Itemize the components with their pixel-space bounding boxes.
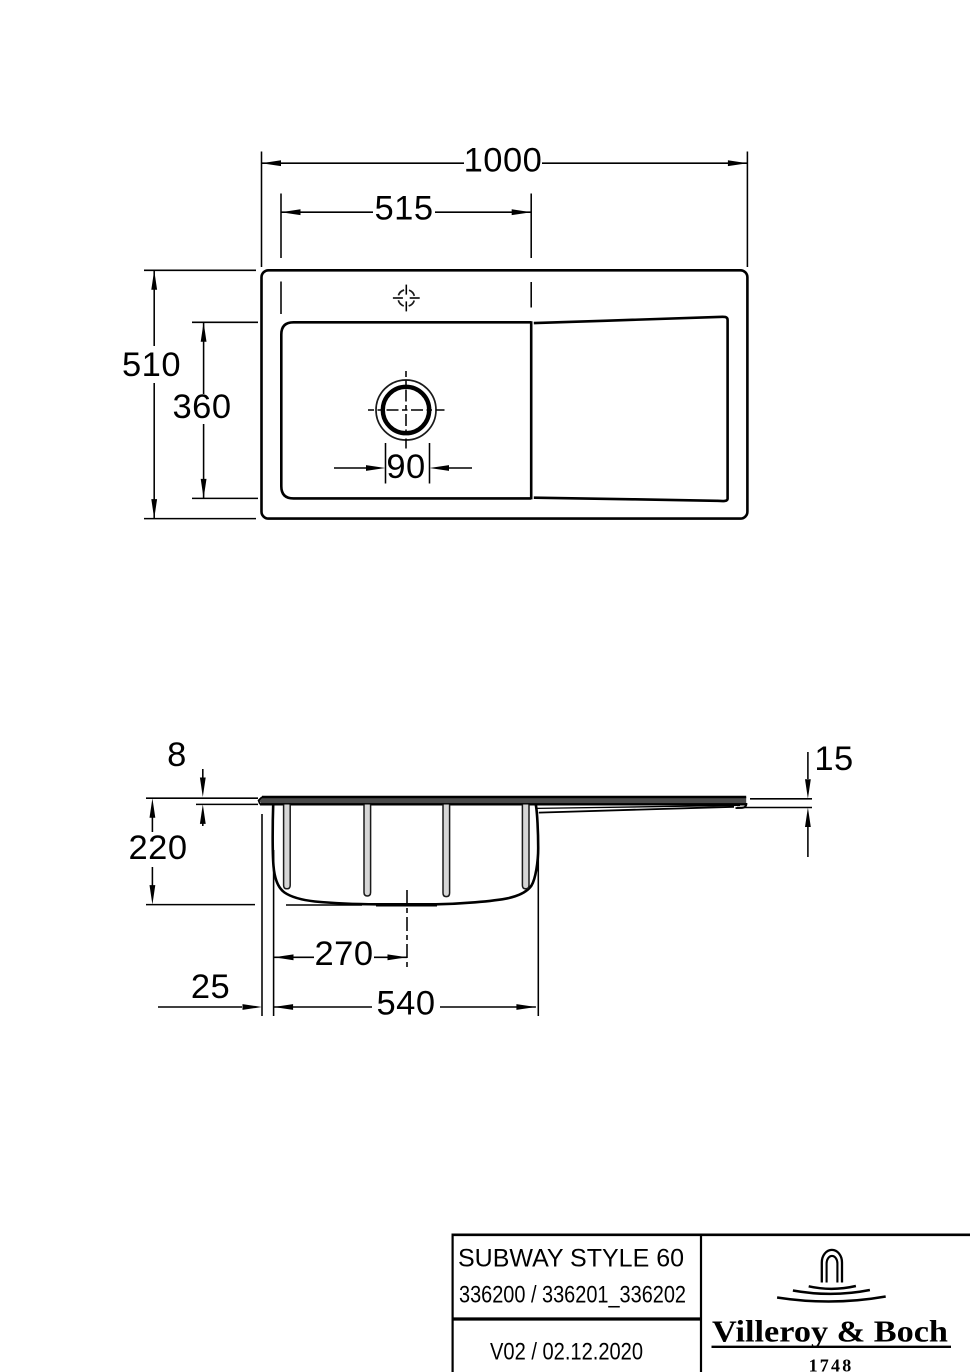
svg-text:510: 510 bbox=[122, 346, 181, 384]
svg-text:90: 90 bbox=[386, 448, 425, 486]
svg-text:15: 15 bbox=[814, 740, 853, 778]
svg-text:270: 270 bbox=[314, 935, 373, 973]
svg-text:25: 25 bbox=[191, 968, 230, 1006]
svg-text:360: 360 bbox=[172, 388, 231, 426]
svg-text:540: 540 bbox=[376, 985, 435, 1023]
svg-text:8: 8 bbox=[167, 736, 187, 774]
svg-text:220: 220 bbox=[128, 829, 187, 867]
svg-text:SUBWAY STYLE 60: SUBWAY STYLE 60 bbox=[458, 1245, 684, 1273]
svg-text:Villeroy & Boch: Villeroy & Boch bbox=[712, 1314, 948, 1349]
svg-text:V02 / 02.12.2020: V02 / 02.12.2020 bbox=[490, 1339, 643, 1366]
svg-text:1000: 1000 bbox=[464, 142, 543, 180]
svg-text:515: 515 bbox=[374, 190, 433, 228]
svg-text:1748: 1748 bbox=[809, 1356, 854, 1372]
svg-text:336200 / 336201_336202: 336200 / 336201_336202 bbox=[459, 1282, 686, 1309]
